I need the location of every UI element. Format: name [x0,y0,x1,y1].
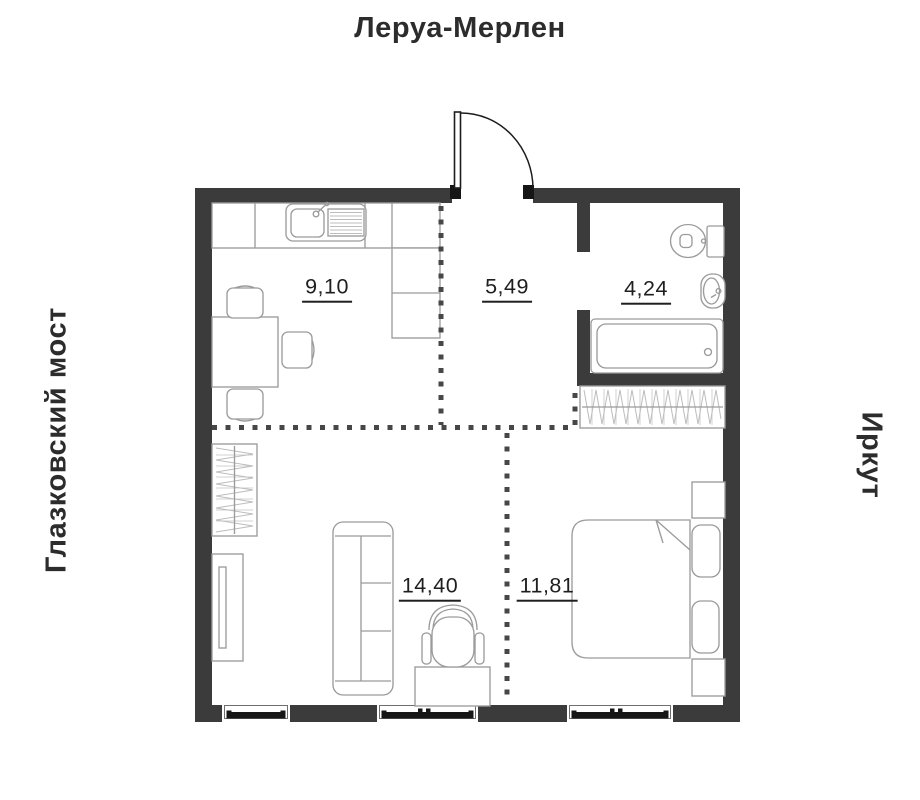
desk-icon [415,667,490,706]
chair-icon [282,332,314,368]
area-label-bathroom: 4,24 [621,278,671,305]
entrance-door-icon [450,112,534,199]
windows [222,705,673,722]
area-label-bedroom: 11,81 [517,575,578,602]
office-chair-icon [422,605,484,667]
pillow-icon [692,601,719,653]
window-icon [567,705,673,722]
area-label-living-room: 14,40 [399,575,461,602]
window-icon [377,705,478,722]
window-icon [222,705,290,722]
floor-plan-page: Леруа-Мерлен Глазковский мост Иркут [0,0,920,800]
wardrobe-icon [212,444,257,536]
wardrobe-icon [580,386,725,428]
nightstand-icon [692,659,725,696]
dining-table-icon [212,317,278,387]
area-label-kitchen: 9,10 [302,276,352,303]
bed-icon [572,520,720,658]
sofa-icon [333,522,393,695]
bathroom-sink-icon [701,274,725,308]
floor-plan-drawing [0,0,920,800]
bathtub-icon [591,319,723,373]
chair-icon [227,286,263,318]
area-label-hallway: 5,49 [482,276,532,303]
nightstand-icon [692,482,725,518]
tv-cabinet-icon [212,554,243,661]
pillow-icon [692,525,720,577]
chair-icon [227,389,263,421]
toilet-icon [671,225,725,258]
kitchen-sink-icon [286,202,366,241]
